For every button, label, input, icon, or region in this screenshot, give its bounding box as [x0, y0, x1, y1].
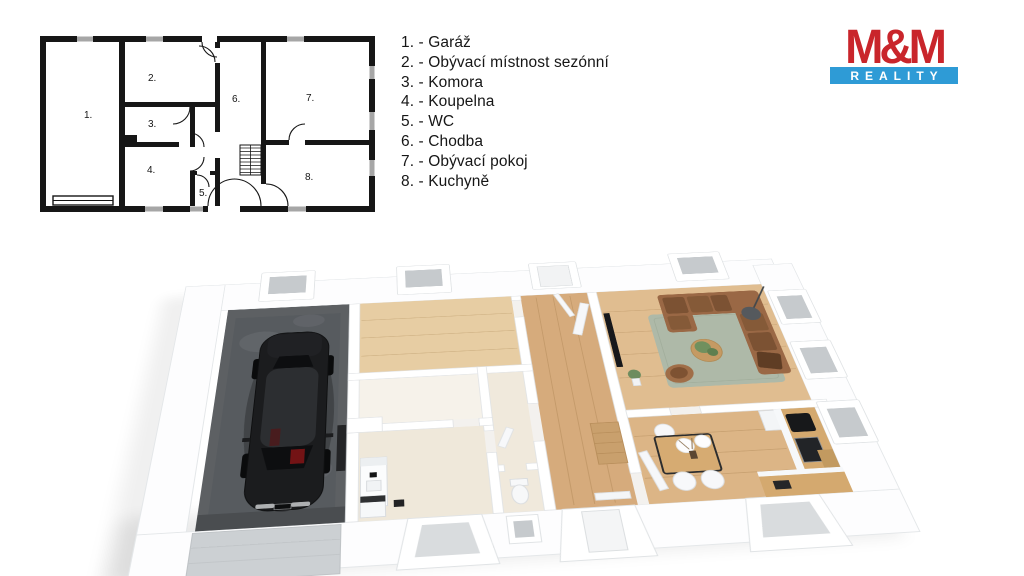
leaning-panel	[336, 425, 346, 471]
legend-item: 1. - Garáž	[401, 33, 609, 53]
svg-text:7.: 7.	[306, 93, 314, 104]
svg-text:3.: 3.	[148, 119, 156, 130]
logo-wordmark: M&M	[830, 24, 958, 68]
svg-text:4.: 4.	[147, 165, 155, 176]
legend-item: 3. - Komora	[401, 73, 609, 93]
real-estate-floorplan-page: 1. 2. 3. 4. 5. 6. 7. 8. 1. - Garáž 2. - …	[0, 0, 1024, 576]
svg-text:6.: 6.	[232, 94, 240, 105]
legend-item: 7. - Obývací pokoj	[401, 152, 609, 172]
mm-reality-logo: M&M REALITY	[830, 25, 958, 84]
car-red-interior	[290, 449, 305, 464]
svg-text:2.: 2.	[148, 73, 156, 84]
pillow	[757, 351, 783, 369]
room2-floor	[359, 296, 521, 373]
appliance	[773, 480, 792, 489]
svg-text:1.: 1.	[84, 110, 92, 121]
floorplan-3d-scene	[142, 178, 882, 576]
garage-door	[185, 524, 341, 576]
grille	[274, 503, 291, 509]
floorplan-3d	[121, 246, 936, 576]
legend-item: 6. - Chodba	[401, 132, 609, 152]
legend-item: 5. - WC	[401, 112, 609, 132]
legend-item: 4. - Koupelna	[401, 92, 609, 112]
entrance-door-leaf	[595, 491, 631, 500]
legend-item: 2. - Obývací místnost sezónní	[401, 53, 609, 73]
plan2d-stairs	[240, 145, 261, 175]
legend: 1. - Garáž 2. - Obývací místnost sezónní…	[401, 33, 609, 191]
plan2d-garage-door	[53, 196, 113, 205]
faucet	[370, 472, 377, 477]
stool	[394, 499, 405, 507]
